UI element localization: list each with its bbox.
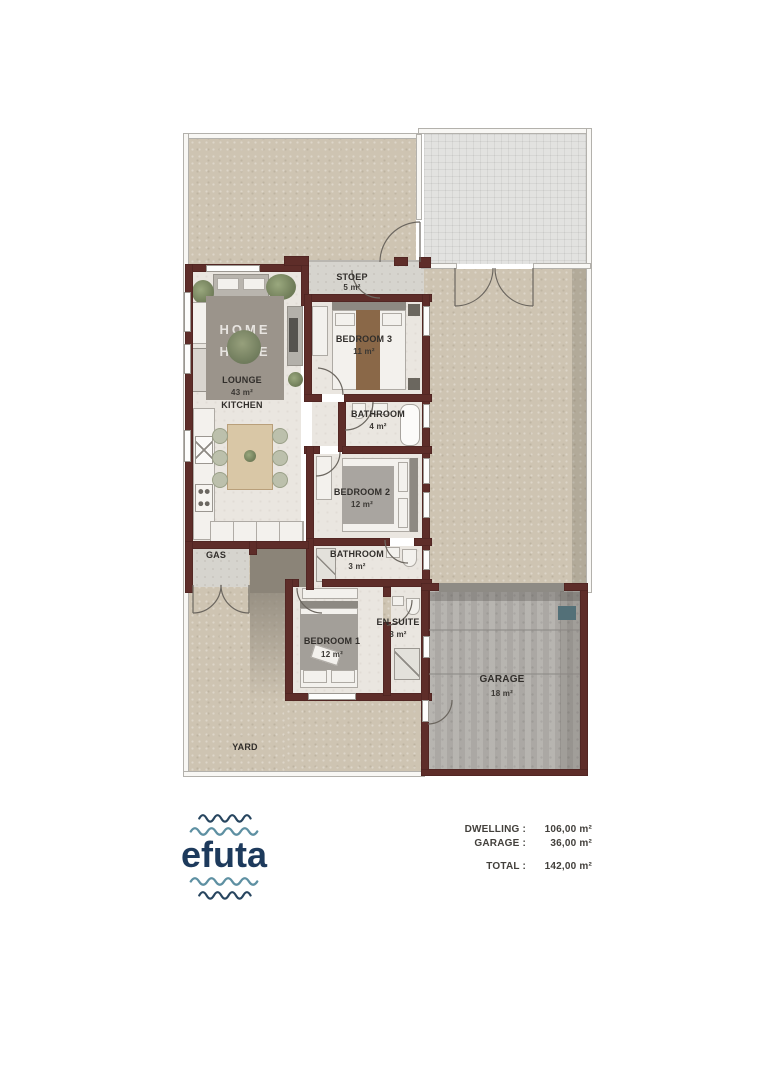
- dwelling-label: DWELLING :: [465, 824, 526, 835]
- garage-value: 36,00 m²: [526, 838, 592, 849]
- floor-plan: HOME HOME: [0, 0, 763, 800]
- dwelling-value: 106,00 m²: [526, 824, 592, 835]
- wave-icon: [196, 812, 252, 823]
- room-label-bedroom2: BEDROOM 2: [334, 487, 390, 497]
- room-area-bathroom-main: 4 m²: [369, 422, 386, 431]
- room-label-bedroom3: BEDROOM 3: [336, 334, 392, 344]
- room-label-stoep: STOEP: [336, 272, 367, 282]
- area-schedule: DWELLING : 106,00 m² GARAGE : 36,00 m² T…: [422, 824, 592, 875]
- room-label-bedroom1: BEDROOM 1: [304, 636, 360, 646]
- room-label-bathroom-small: BATHROOM: [330, 549, 384, 559]
- room-label-lounge: LOUNGE: [222, 375, 262, 385]
- room-area-ensuite: 3 m²: [389, 630, 406, 639]
- room-area-garage: 18 m²: [491, 689, 513, 698]
- logo-wordmark: efuta: [168, 839, 280, 871]
- room-area-bedroom3: 11 m²: [353, 347, 374, 356]
- schedule-row-total: TOTAL : 142,00 m²: [422, 861, 592, 872]
- wave-icon: [196, 889, 252, 900]
- garage-label: GARAGE :: [474, 838, 526, 849]
- room-label-bathroom-main: BATHROOM: [351, 409, 405, 419]
- total-value: 142,00 m²: [526, 861, 592, 872]
- door-swing-arcs: [180, 125, 600, 785]
- room-area-stoep: 5 m²: [343, 283, 360, 292]
- room-label-kitchen: KITCHEN: [221, 400, 262, 410]
- efuta-logo: efuta: [168, 810, 280, 902]
- schedule-row-dwelling: DWELLING : 106,00 m²: [422, 824, 592, 835]
- room-area-bedroom1: 12 m²: [321, 650, 343, 659]
- room-label-garage: GARAGE: [479, 674, 524, 685]
- room-area-bedroom2: 12 m²: [351, 500, 373, 509]
- room-area-bathroom-small: 3 m²: [348, 562, 365, 571]
- wave-icon: [187, 875, 261, 887]
- floor-plan-page: { "plan": { "rooms": { "stoep": {"label"…: [0, 0, 763, 1080]
- total-label: TOTAL :: [486, 861, 526, 872]
- room-area-lounge: 43 m²: [231, 388, 253, 397]
- room-label-yard: YARD: [232, 742, 257, 752]
- schedule-row-garage: GARAGE : 36,00 m²: [422, 838, 592, 849]
- room-label-ensuite: EN SUITE: [376, 617, 419, 627]
- room-label-gas: GAS: [206, 550, 226, 560]
